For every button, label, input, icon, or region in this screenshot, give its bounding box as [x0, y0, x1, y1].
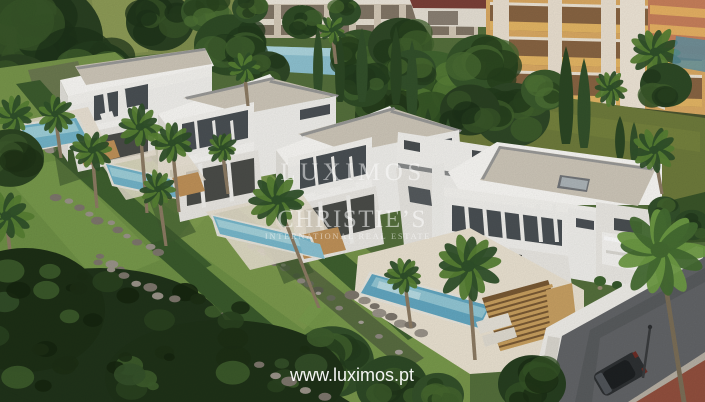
- svg-text:www.luximos.pt: www.luximos.pt: [289, 365, 414, 385]
- svg-text:INTERNATIONAL REAL ESTATE: INTERNATIONAL REAL ESTATE: [265, 231, 431, 241]
- svg-text:LUXIMOS: LUXIMOS: [280, 159, 425, 186]
- svg-text:CHRISTIE’S: CHRISTIE’S: [277, 206, 427, 233]
